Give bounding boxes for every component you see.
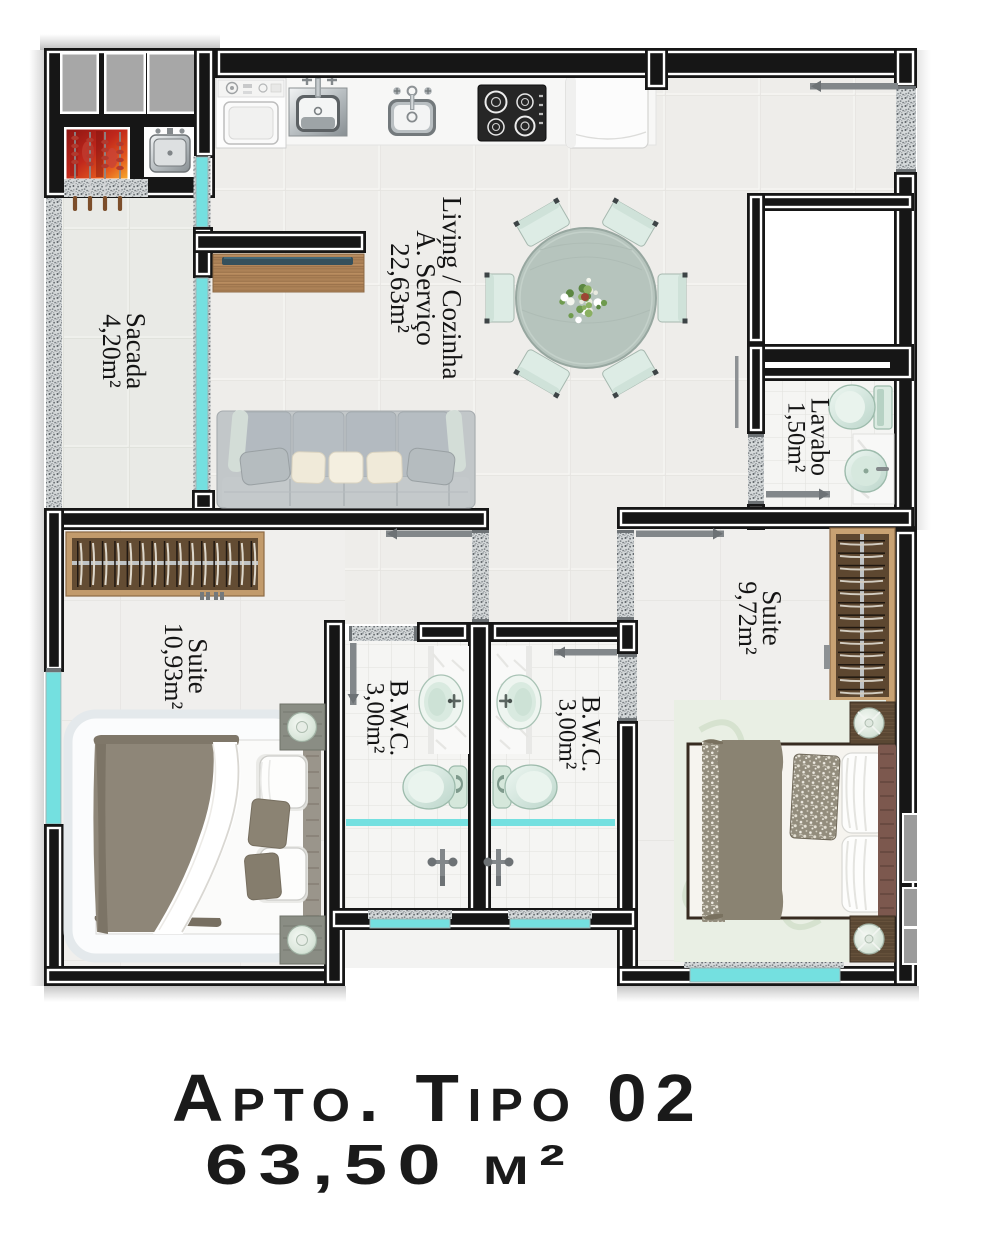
svg-text:10,93m²: 10,93m² <box>159 623 188 710</box>
svg-text:Apto. Tipo 02: Apto. Tipo 02 <box>172 1060 704 1136</box>
svg-text:4,20m²: 4,20m² <box>97 314 126 388</box>
svg-text:63,50 m²: 63,50 m² <box>205 1134 575 1197</box>
svg-text:3,00m²: 3,00m² <box>554 699 581 770</box>
svg-text:3,00m²: 3,00m² <box>362 683 389 754</box>
svg-text:9,72m²: 9,72m² <box>733 581 762 655</box>
svg-text:22,63m²: 22,63m² <box>385 243 415 333</box>
svg-text:1,50m²: 1,50m² <box>783 402 810 473</box>
